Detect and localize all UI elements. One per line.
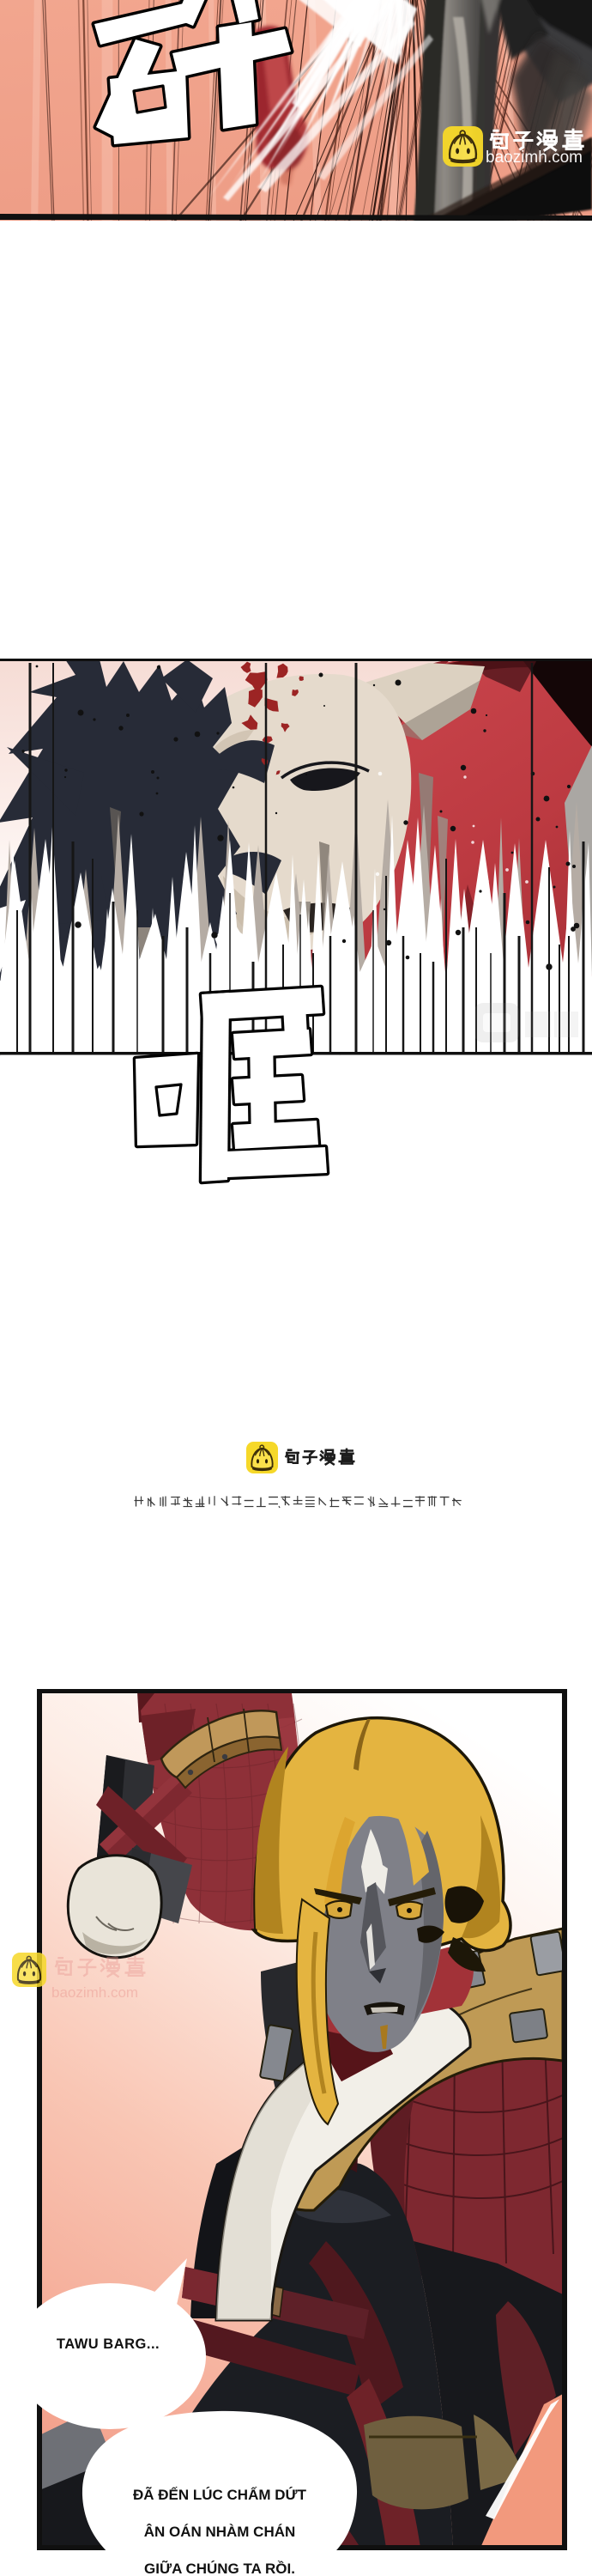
svg-text:TAWU BARG...: TAWU BARG...: [57, 2336, 160, 2352]
svg-text:baozimh.com: baozimh.com: [486, 149, 583, 167]
svg-text:GIỮA CHÚNG TA RỒI.: GIỮA CHÚNG TA RỒI.: [144, 2560, 295, 2576]
svg-text:baozimh.com: baozimh.com: [51, 1984, 138, 2001]
svg-text:ÂN OÁN NHÀM CHÁN: ÂN OÁN NHÀM CHÁN: [144, 2524, 296, 2540]
svg-text:ĐÃ ĐẾN LÚC CHẤM DỨT: ĐÃ ĐẾN LÚC CHẤM DỨT: [133, 2486, 307, 2503]
